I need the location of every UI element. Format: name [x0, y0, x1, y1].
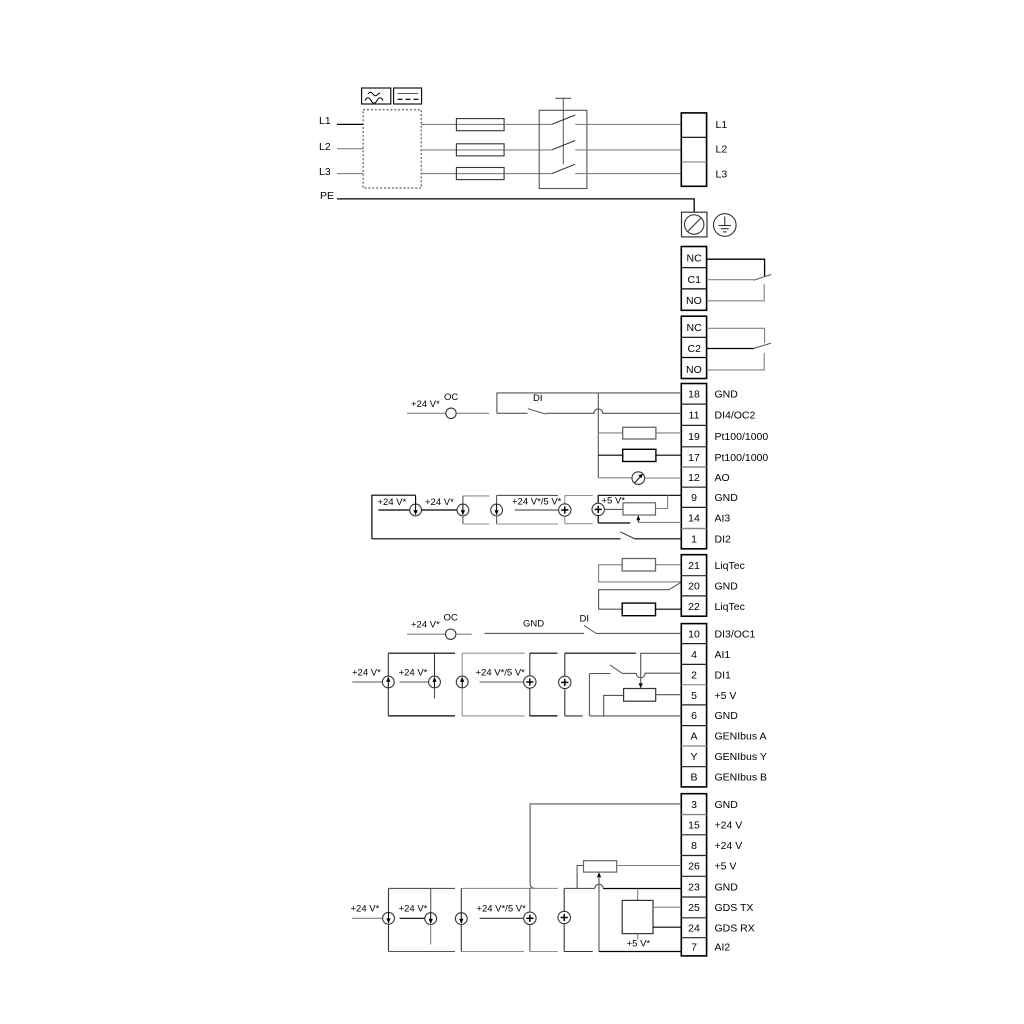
svg-text:14: 14	[688, 513, 700, 525]
svg-text:20: 20	[688, 581, 700, 593]
svg-text:GDS TX: GDS TX	[715, 902, 754, 914]
svg-text:26: 26	[688, 861, 700, 873]
svg-text:AI1: AI1	[715, 649, 731, 661]
svg-text:C1: C1	[688, 274, 702, 286]
svg-text:A: A	[690, 731, 697, 743]
svg-text:Y: Y	[690, 751, 697, 763]
svg-text:18: 18	[688, 389, 700, 401]
svg-text:15: 15	[688, 820, 700, 832]
svg-text:NC: NC	[687, 322, 703, 334]
svg-text:+24 V: +24 V	[715, 820, 743, 832]
svg-text:21: 21	[688, 560, 700, 572]
svg-text:11: 11	[689, 410, 700, 422]
svg-text:OC: OC	[444, 613, 458, 624]
svg-text:DI3/OC1: DI3/OC1	[715, 629, 756, 641]
svg-text:L3: L3	[319, 166, 331, 178]
svg-text:GENIbus Y: GENIbus Y	[715, 751, 767, 763]
svg-text:GDS RX: GDS RX	[715, 923, 755, 935]
svg-text:4: 4	[691, 649, 697, 661]
svg-text:+24 V*: +24 V*	[411, 399, 440, 410]
svg-text:B: B	[690, 772, 697, 784]
svg-text:GND: GND	[715, 389, 739, 401]
svg-text:+24 V*: +24 V*	[351, 904, 380, 915]
svg-text:+24 V*/5 V*: +24 V*/5 V*	[476, 904, 526, 915]
svg-text:L3: L3	[716, 169, 728, 181]
svg-text:+24 V*/5 V*: +24 V*/5 V*	[512, 497, 562, 508]
svg-text:9: 9	[691, 492, 697, 504]
svg-text:OC: OC	[444, 392, 458, 403]
svg-text:19: 19	[688, 431, 700, 443]
svg-text:1: 1	[691, 534, 697, 546]
svg-text:8: 8	[691, 840, 697, 852]
svg-text:DI2: DI2	[715, 534, 732, 546]
svg-text:24: 24	[688, 923, 700, 935]
svg-text:17: 17	[688, 452, 700, 464]
svg-text:+24 V*: +24 V*	[399, 904, 428, 915]
svg-text:GND: GND	[523, 619, 544, 630]
svg-text:+5 V*: +5 V*	[602, 496, 626, 507]
svg-text:+24 V*/5 V*: +24 V*/5 V*	[476, 668, 526, 679]
svg-text:GND: GND	[715, 581, 739, 593]
svg-text:25: 25	[688, 902, 700, 914]
svg-text:AO: AO	[715, 472, 730, 484]
svg-text:+24 V: +24 V	[715, 840, 743, 852]
svg-text:GENIbus A: GENIbus A	[715, 731, 767, 743]
svg-text:L2: L2	[716, 144, 728, 156]
svg-text:NO: NO	[686, 295, 702, 307]
svg-text:+5 V*: +5 V*	[627, 938, 651, 949]
svg-text:C2: C2	[688, 343, 702, 355]
svg-text:GND: GND	[715, 710, 739, 722]
svg-text:DI1: DI1	[715, 670, 732, 682]
svg-text:+24 V*: +24 V*	[378, 497, 407, 508]
svg-text:LiqTec: LiqTec	[715, 601, 745, 613]
svg-text:Pt100/1000: Pt100/1000	[715, 452, 769, 464]
svg-text:+24 V*: +24 V*	[425, 497, 454, 508]
svg-text:LiqTec: LiqTec	[715, 560, 745, 572]
svg-text:L1: L1	[716, 119, 728, 131]
svg-text:NO: NO	[686, 364, 702, 376]
svg-text:PE: PE	[320, 190, 334, 202]
svg-text:5: 5	[691, 690, 697, 702]
svg-text:L2: L2	[319, 141, 331, 153]
svg-text:DI4/OC2: DI4/OC2	[715, 410, 756, 422]
svg-text:L1: L1	[319, 115, 331, 127]
svg-text:GND: GND	[715, 882, 739, 894]
svg-text:23: 23	[688, 882, 700, 894]
svg-text:GND: GND	[715, 492, 739, 504]
svg-text:+5 V: +5 V	[715, 690, 737, 702]
svg-text:6: 6	[691, 710, 697, 722]
svg-text:+5 V: +5 V	[715, 861, 737, 873]
svg-text:NC: NC	[687, 253, 703, 265]
svg-text:2: 2	[691, 670, 697, 682]
svg-text:GENIbus B: GENIbus B	[715, 772, 768, 784]
svg-text:22: 22	[688, 601, 700, 613]
svg-text:DI: DI	[533, 393, 543, 404]
svg-text:10: 10	[688, 629, 700, 641]
svg-text:12: 12	[688, 472, 700, 484]
svg-text:7: 7	[691, 942, 697, 954]
svg-text:+24 V*: +24 V*	[411, 620, 440, 631]
svg-text:Pt100/1000: Pt100/1000	[715, 431, 769, 443]
svg-text:GND: GND	[715, 799, 739, 811]
svg-text:+24 V*: +24 V*	[352, 668, 381, 679]
svg-text:3: 3	[691, 799, 697, 811]
svg-text:AI2: AI2	[715, 942, 731, 954]
svg-text:AI3: AI3	[715, 513, 731, 525]
svg-text:DI: DI	[580, 614, 590, 625]
svg-text:+24 V*: +24 V*	[399, 668, 428, 679]
